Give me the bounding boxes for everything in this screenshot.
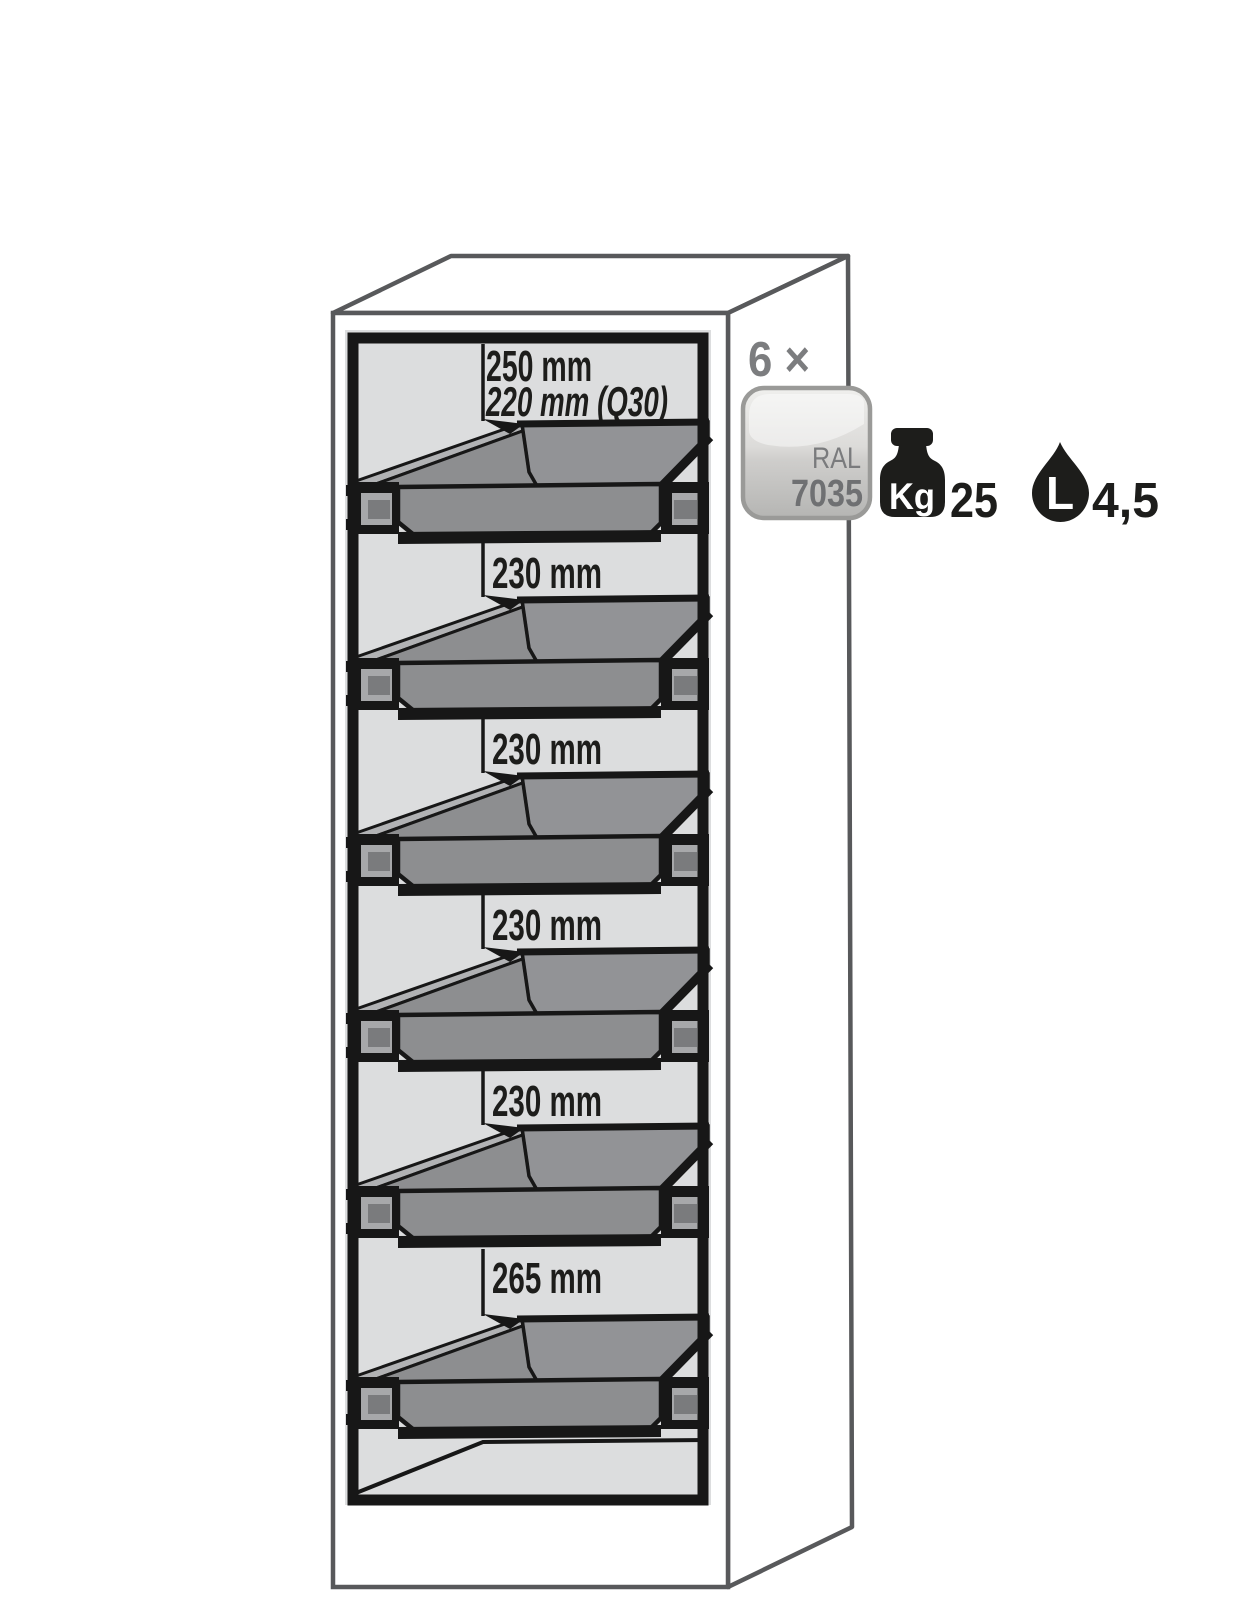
cabinet-diagram: 250 mm 220 mm (Q30) 230 mm 230 mm 230 mm… [0,0,1241,1624]
compartment-3-height-label: 230 mm [492,725,602,774]
ral-badge-code: 7035 [791,473,863,515]
load-capacity-unit: Kg [889,476,935,517]
diagram-stage: 250 mm 220 mm (Q30) 230 mm 230 mm 230 mm… [0,0,1241,1624]
volume-value: 4,5 [1092,474,1159,528]
compartment-6-height-label: 265 mm [492,1254,602,1303]
compartment-4-height-label: 230 mm [492,901,602,950]
volume-unit: L [1046,467,1074,519]
compartment-1-alt-height-label: 220 mm (Q30) [485,378,668,426]
compartment-5-height-label: 230 mm [492,1077,602,1126]
ral-badge-title: RAL [812,442,861,475]
load-capacity-value: 25 [950,474,998,528]
ral-7035-badge: RAL 7035 [743,388,870,518]
cabinet-interior: 250 mm 220 mm (Q30) 230 mm 230 mm 230 mm… [345,330,711,1505]
weight-icon: Kg [880,428,945,517]
quantity-label: 6 × [748,333,810,387]
volume-callout: L 4,5 [1032,442,1159,528]
compartment-2-height-label: 230 mm [492,549,602,598]
load-capacity-callout: Kg 25 [880,428,998,528]
drop-icon: L [1032,442,1089,522]
